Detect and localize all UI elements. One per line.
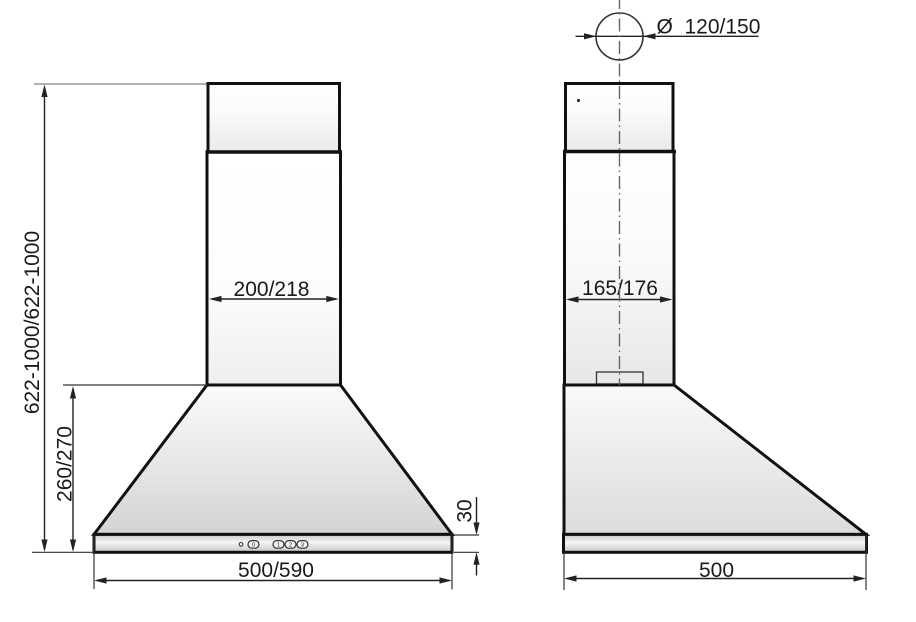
svg-text:1: 1	[277, 543, 280, 549]
svg-text:260/270: 260/270	[53, 426, 76, 502]
svg-text:2: 2	[289, 543, 292, 549]
svg-text:500/590: 500/590	[238, 559, 314, 582]
svg-text:30: 30	[454, 499, 477, 522]
svg-text:Ø 120/150: Ø 120/150	[657, 16, 761, 39]
svg-text:0: 0	[252, 543, 255, 549]
svg-text:622-1000/622-1000: 622-1000/622-1000	[21, 231, 44, 414]
svg-text:3: 3	[301, 543, 304, 549]
svg-text:500: 500	[699, 559, 734, 582]
svg-text:200/218: 200/218	[234, 278, 310, 301]
